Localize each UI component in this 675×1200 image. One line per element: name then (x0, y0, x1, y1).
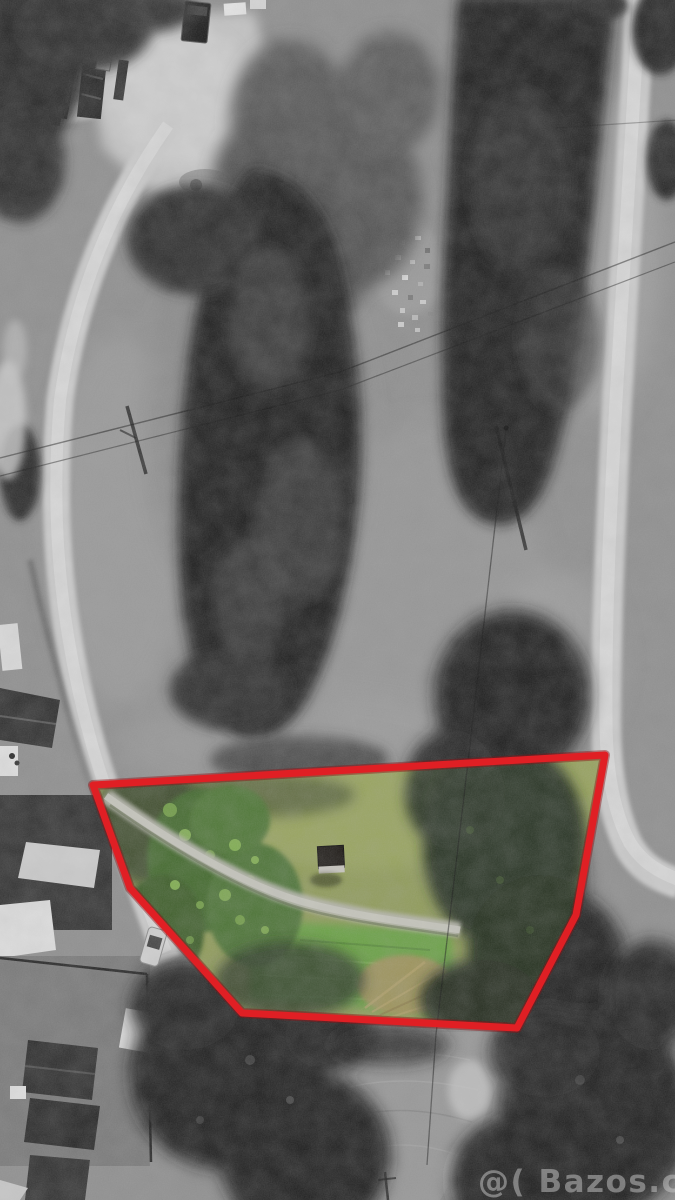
aerial-photo: @( Bazos.cz (0, 0, 675, 1200)
aerial-photo-svg: @( Bazos.cz (0, 0, 675, 1200)
watermark-text: @( Bazos.cz (478, 1164, 675, 1200)
